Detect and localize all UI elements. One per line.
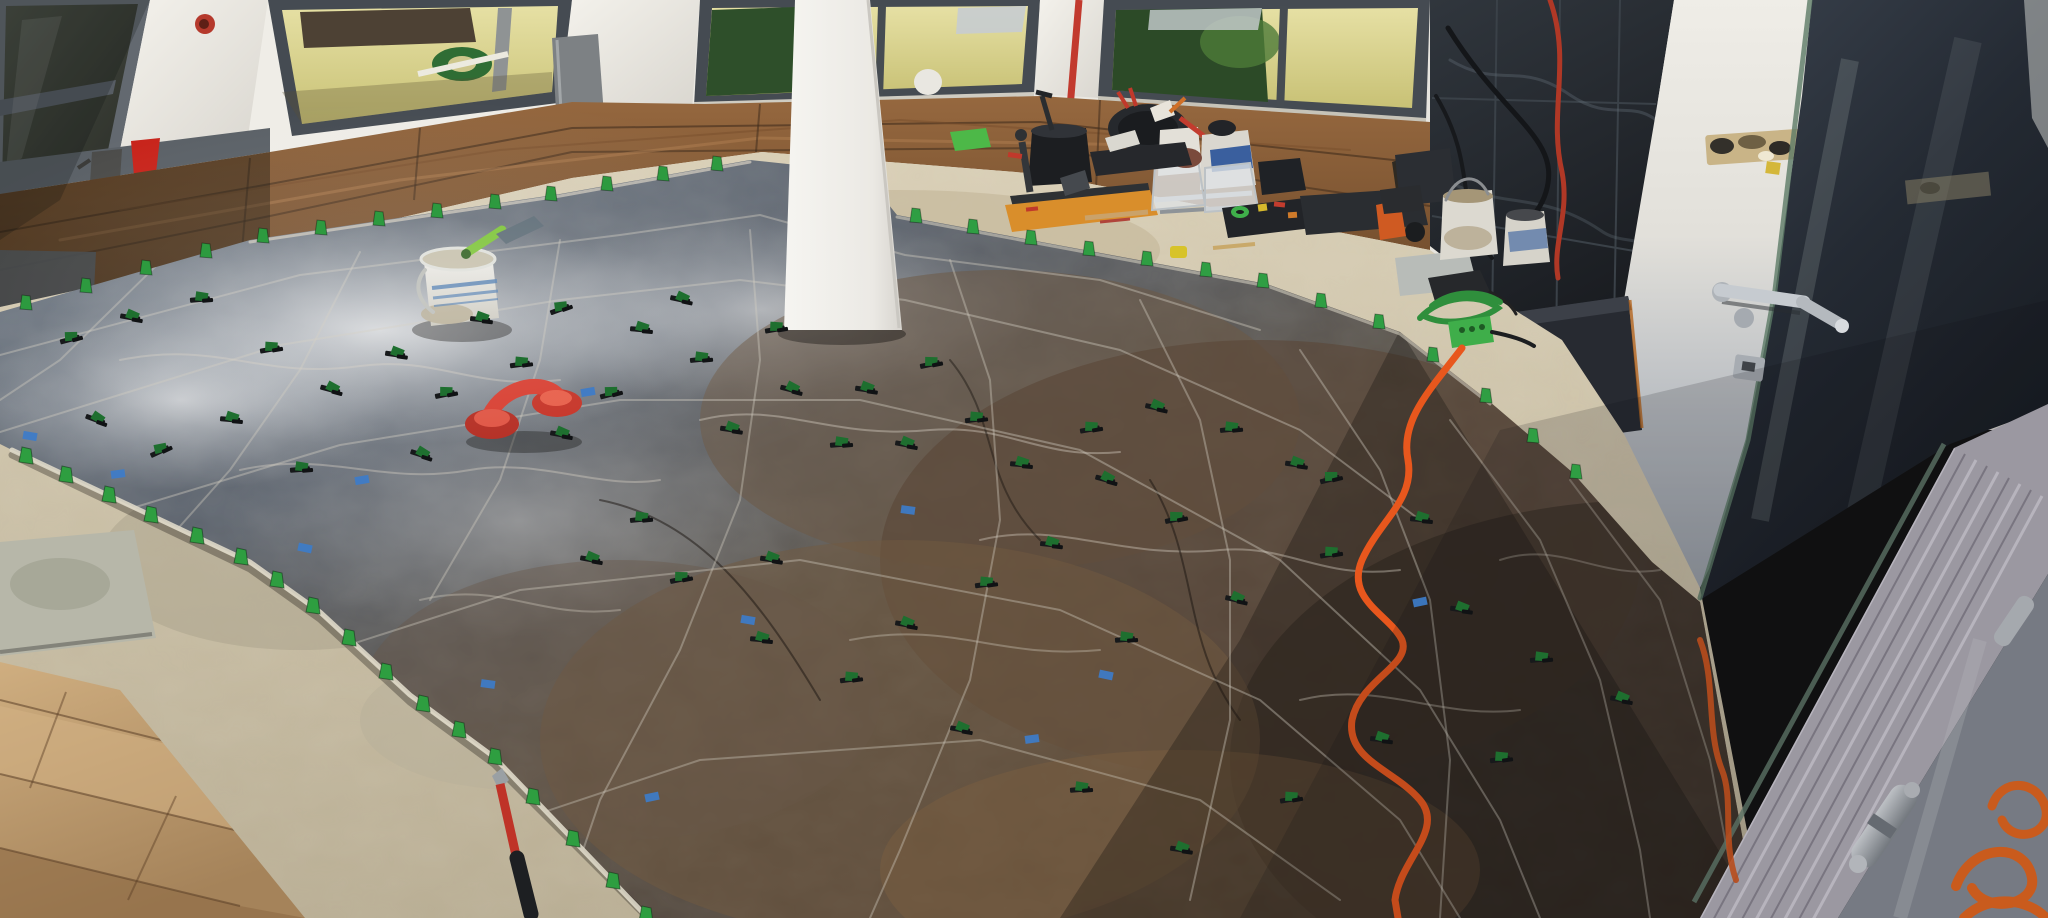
green-glove	[950, 128, 991, 151]
gray-stone-board-mottle	[10, 558, 110, 610]
edge-clip	[1427, 347, 1439, 362]
green-tape-hole	[1236, 210, 1244, 214]
power-strip-socket-2	[1469, 326, 1475, 332]
camo-reflection-blob	[1920, 182, 1940, 194]
edge-wedge-clip	[379, 663, 393, 680]
edge-wedge-clip	[606, 872, 620, 889]
edge-clip	[1200, 262, 1212, 277]
edge-clip	[431, 203, 443, 218]
photo-scene	[0, 0, 2048, 918]
window-car	[956, 6, 1026, 34]
bucket-right-1-dirt	[1444, 226, 1492, 250]
tape-measure	[1170, 246, 1187, 258]
edge-clip	[1025, 230, 1037, 245]
edge-wedge-clip	[234, 548, 248, 565]
edge-clip	[711, 156, 723, 171]
edge-wedge-clip	[488, 748, 502, 765]
camo-blob-3	[1769, 141, 1791, 155]
edge-clip	[910, 208, 922, 223]
door-handle-endcap	[1835, 319, 1849, 333]
edge-wedge-clip	[306, 597, 320, 614]
power-strip-socket-3	[1479, 324, 1485, 330]
black-bucket-rim	[1031, 124, 1087, 138]
edge-clip	[1527, 428, 1539, 443]
edge-clip	[1257, 273, 1269, 288]
edge-wedge-clip	[190, 527, 204, 544]
camo-blob-2	[1738, 135, 1766, 149]
right-window-mullion	[1280, 6, 1284, 112]
window-hedge	[706, 7, 802, 96]
edge-wedge-clip	[270, 571, 284, 588]
orange-bit-tray	[1288, 212, 1297, 219]
orange-machine-top	[1380, 185, 1424, 214]
edge-clip	[200, 243, 212, 258]
bucket-right-2-top	[1506, 209, 1544, 221]
edge-clip	[20, 295, 32, 310]
screenshot-root	[0, 0, 2048, 918]
dark-item-on-bucket	[1208, 120, 1236, 136]
scene-layers	[0, 0, 2048, 918]
edge-wedge-clip	[566, 830, 580, 847]
edge-wedge-clip	[59, 466, 73, 483]
window-car-2	[1148, 8, 1262, 30]
camo-blob-4	[1758, 151, 1774, 161]
camo-blob-1	[1710, 138, 1734, 154]
yellow-bit	[1258, 203, 1268, 211]
window-trailer	[300, 8, 476, 48]
edge-clip	[1570, 464, 1582, 479]
edge-clip	[657, 166, 669, 181]
edge-clip	[1141, 251, 1153, 266]
edge-wedge-clip	[342, 629, 356, 646]
socket-hole	[199, 19, 209, 29]
dark-tote	[1258, 158, 1306, 195]
edge-clip	[489, 194, 501, 209]
edge-clip	[601, 176, 613, 191]
door-handle-plate-2	[1734, 308, 1754, 328]
camo-tape-tail	[1765, 161, 1781, 175]
mid-window-mullion	[879, 6, 882, 98]
tile-cutter-knob	[1015, 129, 1027, 141]
edge-clip	[967, 219, 979, 234]
sill-ball	[914, 69, 942, 95]
edge-wedge-clip	[144, 506, 158, 523]
edge-clip	[315, 220, 327, 235]
edge-clip	[140, 260, 152, 275]
edge-clip	[545, 186, 557, 201]
edge-wedge-clip	[416, 695, 430, 712]
edge-clip	[80, 278, 92, 293]
edge-clip	[1315, 293, 1327, 308]
edge-wedge-clip	[452, 721, 466, 738]
edge-clip	[257, 228, 269, 243]
edge-wedge-clip	[19, 447, 33, 464]
edge-clip	[373, 211, 385, 226]
edge-clip	[1083, 241, 1095, 256]
edge-clip	[1373, 314, 1385, 329]
power-strip-socket-1	[1459, 327, 1465, 333]
bucket-right-2-label	[1508, 228, 1548, 252]
edge-clip	[1480, 388, 1492, 403]
edge-wedge-clip	[526, 788, 540, 805]
power-tool-wheel	[1405, 222, 1425, 242]
edge-wedge-clip	[102, 486, 116, 503]
